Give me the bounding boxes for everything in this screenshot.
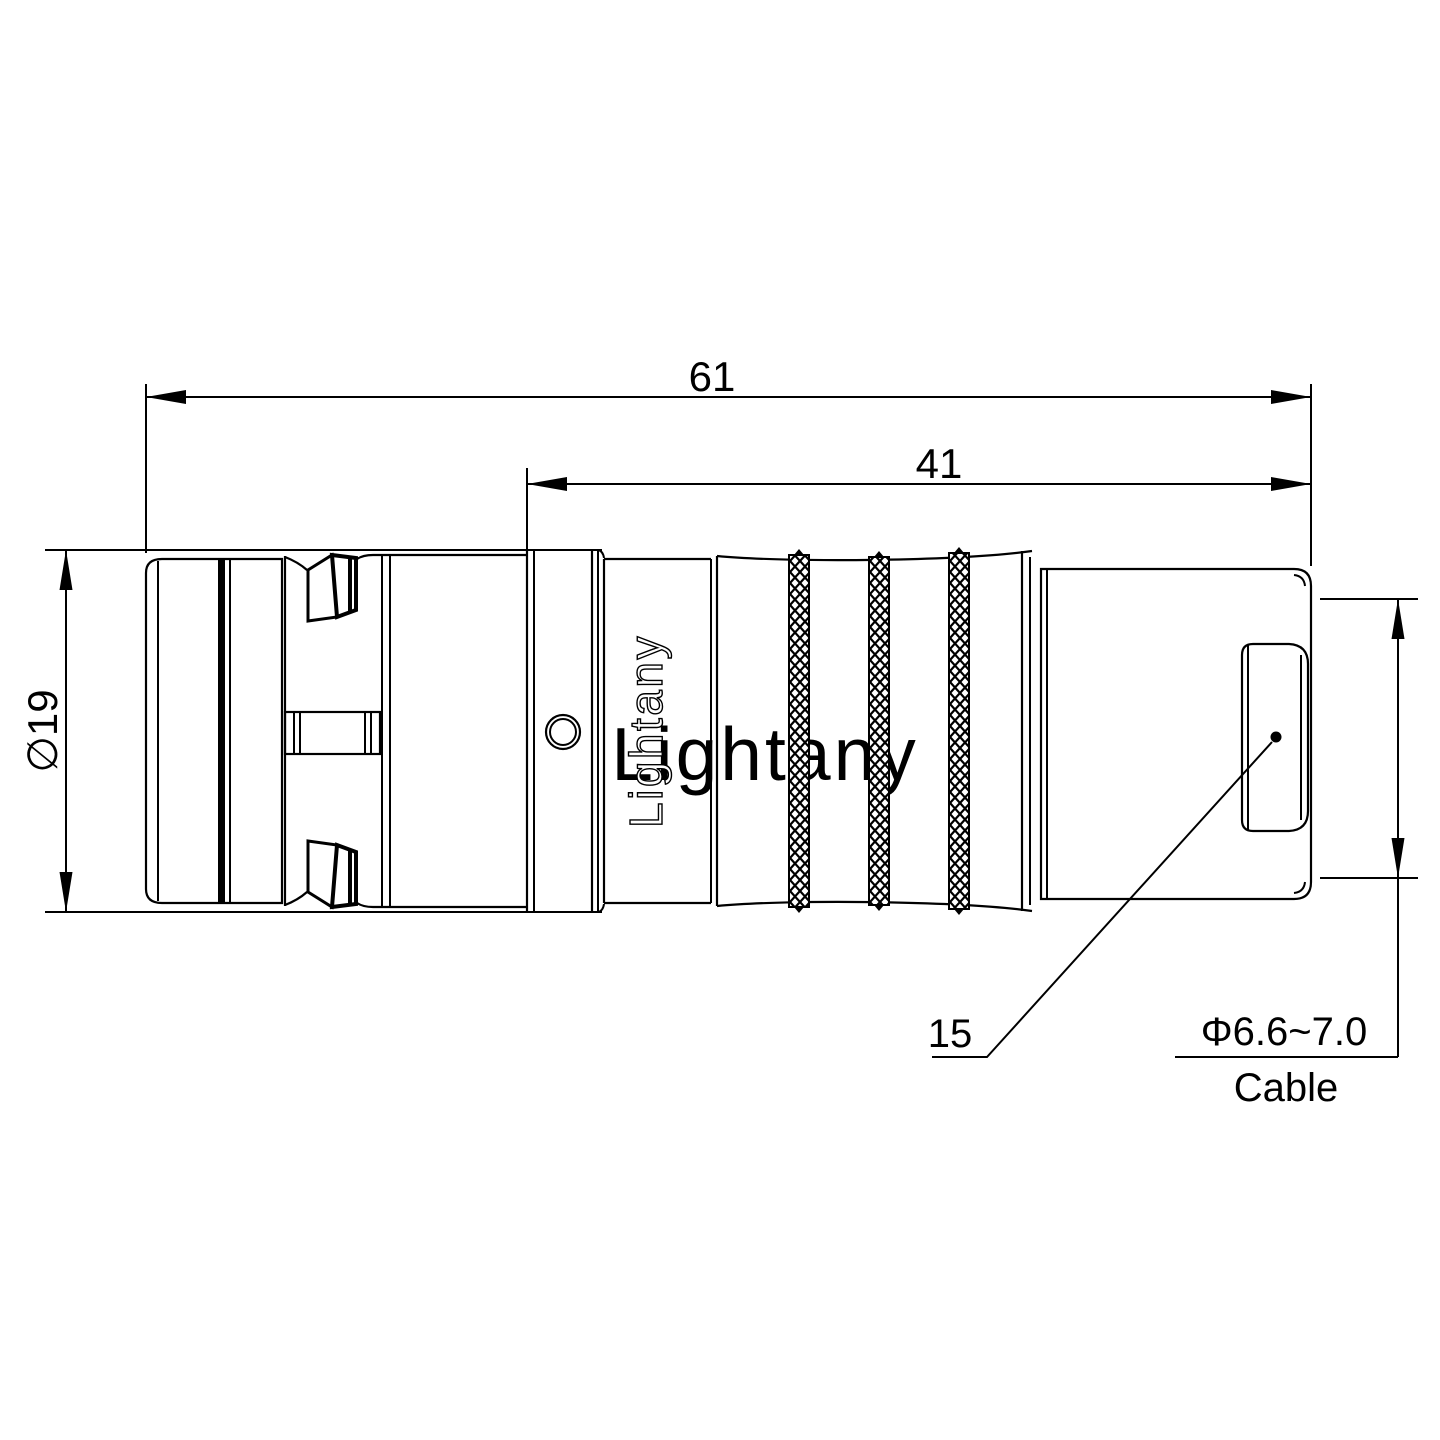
label-cable: Cable: [1234, 1066, 1339, 1110]
connector-left-cap: [146, 559, 282, 903]
vent-hole-inner: [550, 719, 576, 745]
shell-bottom-dip-left: [285, 892, 307, 905]
knurl-band: [869, 551, 889, 911]
dim-overall-length: 61: [146, 353, 1311, 566]
arrowhead-bottom: [60, 872, 73, 912]
knurl-texture: [789, 555, 809, 907]
dim-value-rear-length: 41: [916, 440, 963, 487]
arrowhead-right: [1271, 477, 1311, 491]
boot-corner-inner-top: [1294, 575, 1305, 586]
dim-value-overall-length: 61: [689, 353, 736, 400]
drawing-canvas: Lightany 61 41 ∅19: [0, 0, 1440, 1440]
shell-top-dip-left: [285, 557, 307, 570]
cap-seal-band: [218, 559, 225, 903]
pin-side: [332, 555, 356, 617]
dim-rear-length: 41: [527, 440, 1311, 549]
bayonet-shell: [285, 555, 527, 907]
bayonet-pin-top: [308, 555, 356, 621]
dim-value-nut-size: 15: [928, 1012, 973, 1056]
connector-technical-drawing: Lightany 61 41 ∅19: [0, 0, 1440, 1440]
knurl-band: [789, 549, 809, 913]
brand-engraving: Lightany: [620, 634, 672, 828]
arrowhead-left: [146, 390, 186, 404]
arrowhead-right: [1271, 390, 1311, 404]
leader-dot: [1271, 732, 1282, 743]
boot-corner-inner-bottom: [1294, 882, 1305, 893]
arrowhead-top: [1392, 599, 1405, 639]
bayonet-slot-lines: [294, 712, 371, 754]
knurl-texture: [949, 553, 969, 909]
arrowhead-left: [527, 477, 567, 491]
dim-cable-diameter: Φ6.6~7.0 Cable: [1175, 599, 1418, 1110]
dim-value-shell-diameter: ∅19: [19, 689, 66, 772]
dim-value-cable-range: Φ6.6~7.0: [1201, 1010, 1367, 1054]
dim-shell-diameter: ∅19: [19, 550, 602, 912]
bayonet-pin-bottom: [308, 841, 356, 907]
coupling-collar: [527, 550, 598, 912]
vent-hole-outer: [546, 715, 580, 749]
pin-side: [332, 845, 356, 907]
knurl-band: [949, 547, 969, 915]
arrowhead-top: [60, 550, 73, 590]
arrowhead-bottom: [1392, 838, 1405, 878]
cap-outline: [146, 559, 282, 903]
knurl-texture: [869, 557, 889, 905]
